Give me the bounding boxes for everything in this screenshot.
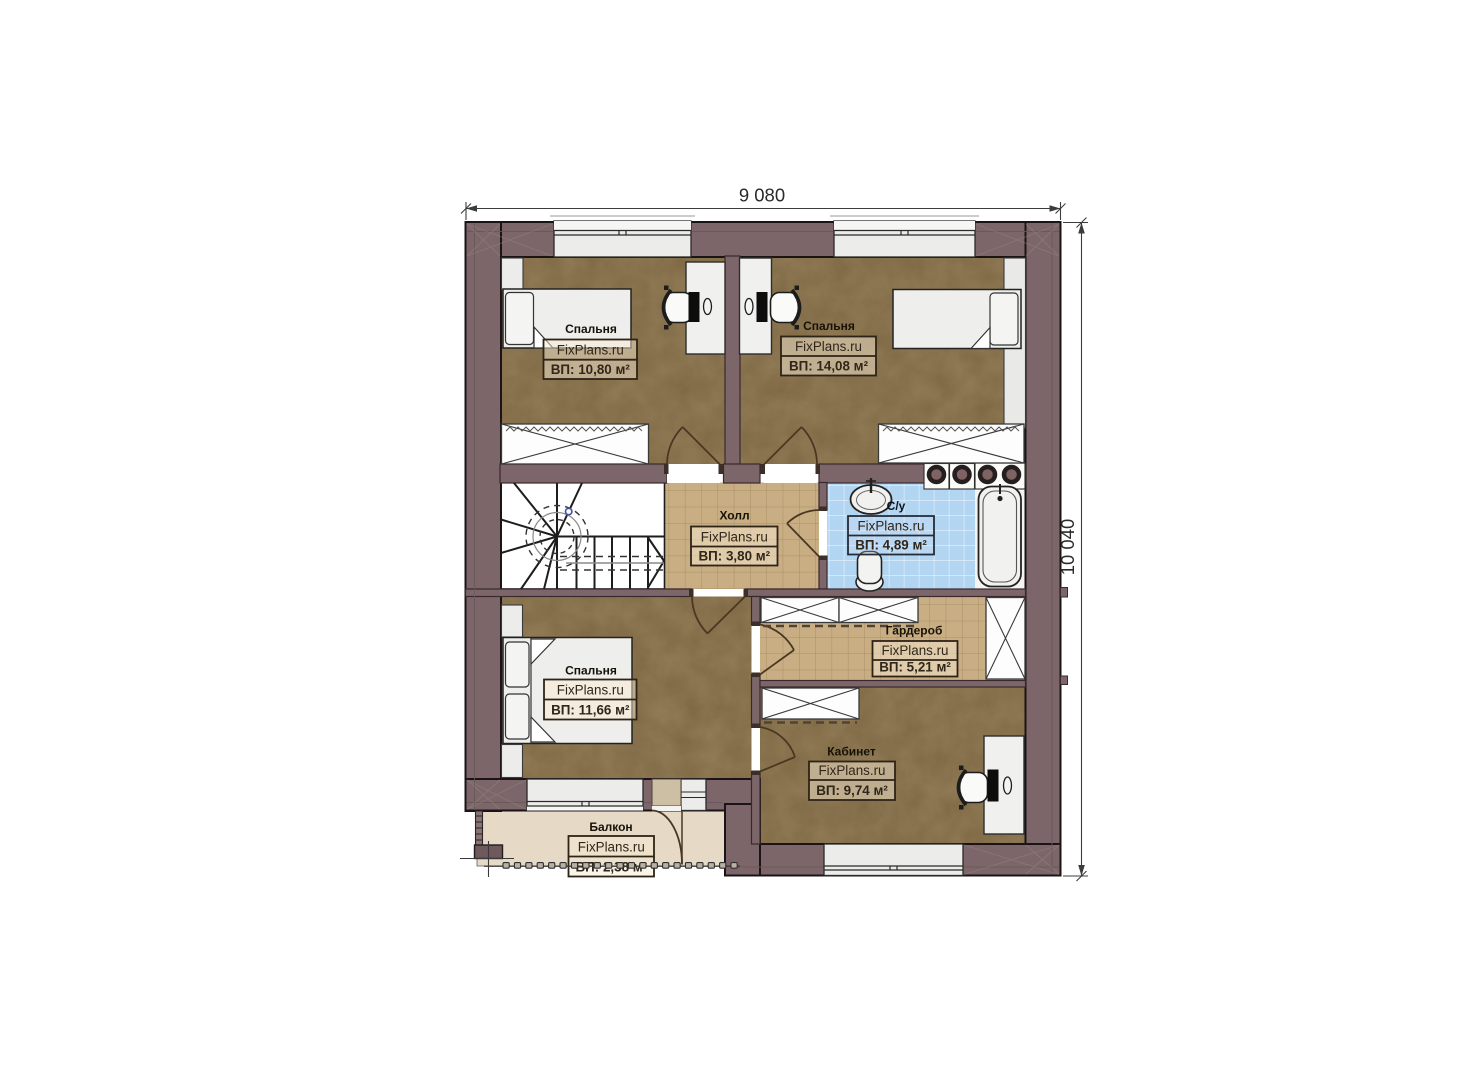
- svg-text:FixPlans.ru: FixPlans.ru: [578, 839, 645, 854]
- svg-text:Балкон: Балкон: [589, 820, 632, 834]
- svg-text:ВП: 10,80 м²: ВП: 10,80 м²: [551, 362, 631, 377]
- svg-text:FixPlans.ru: FixPlans.ru: [882, 643, 949, 658]
- svg-text:ВП: 14,08 м²: ВП: 14,08 м²: [789, 358, 869, 373]
- svg-text:10 040: 10 040: [1057, 519, 1078, 576]
- svg-text:ВП: 11,66 м²: ВП: 11,66 м²: [551, 702, 630, 717]
- svg-text:FixPlans.ru: FixPlans.ru: [557, 343, 624, 358]
- svg-text:FixPlans.ru: FixPlans.ru: [557, 682, 624, 697]
- svg-text:9 080: 9 080: [739, 185, 785, 206]
- svg-text:ВП: 4,89 м²: ВП: 4,89 м²: [855, 537, 927, 552]
- svg-text:Спальня: Спальня: [565, 322, 617, 336]
- svg-text:С/у: С/у: [887, 499, 906, 513]
- svg-text:Гардероб: Гардероб: [886, 624, 943, 638]
- svg-text:FixPlans.ru: FixPlans.ru: [701, 529, 768, 544]
- svg-text:FixPlans.ru: FixPlans.ru: [858, 518, 925, 533]
- svg-text:Спальня: Спальня: [565, 664, 617, 678]
- svg-text:ВП: 9,74 м²: ВП: 9,74 м²: [816, 783, 888, 798]
- svg-text:Кабинет: Кабинет: [827, 745, 876, 759]
- svg-text:Спальня: Спальня: [803, 319, 855, 333]
- svg-text:Холл: Холл: [719, 509, 749, 523]
- svg-text:ВП: 5,21 м²: ВП: 5,21 м²: [879, 659, 951, 674]
- svg-text:ВП: 3,80 м²: ВП: 3,80 м²: [698, 548, 770, 563]
- svg-text:FixPlans.ru: FixPlans.ru: [795, 339, 862, 354]
- svg-text:FixPlans.ru: FixPlans.ru: [819, 763, 886, 778]
